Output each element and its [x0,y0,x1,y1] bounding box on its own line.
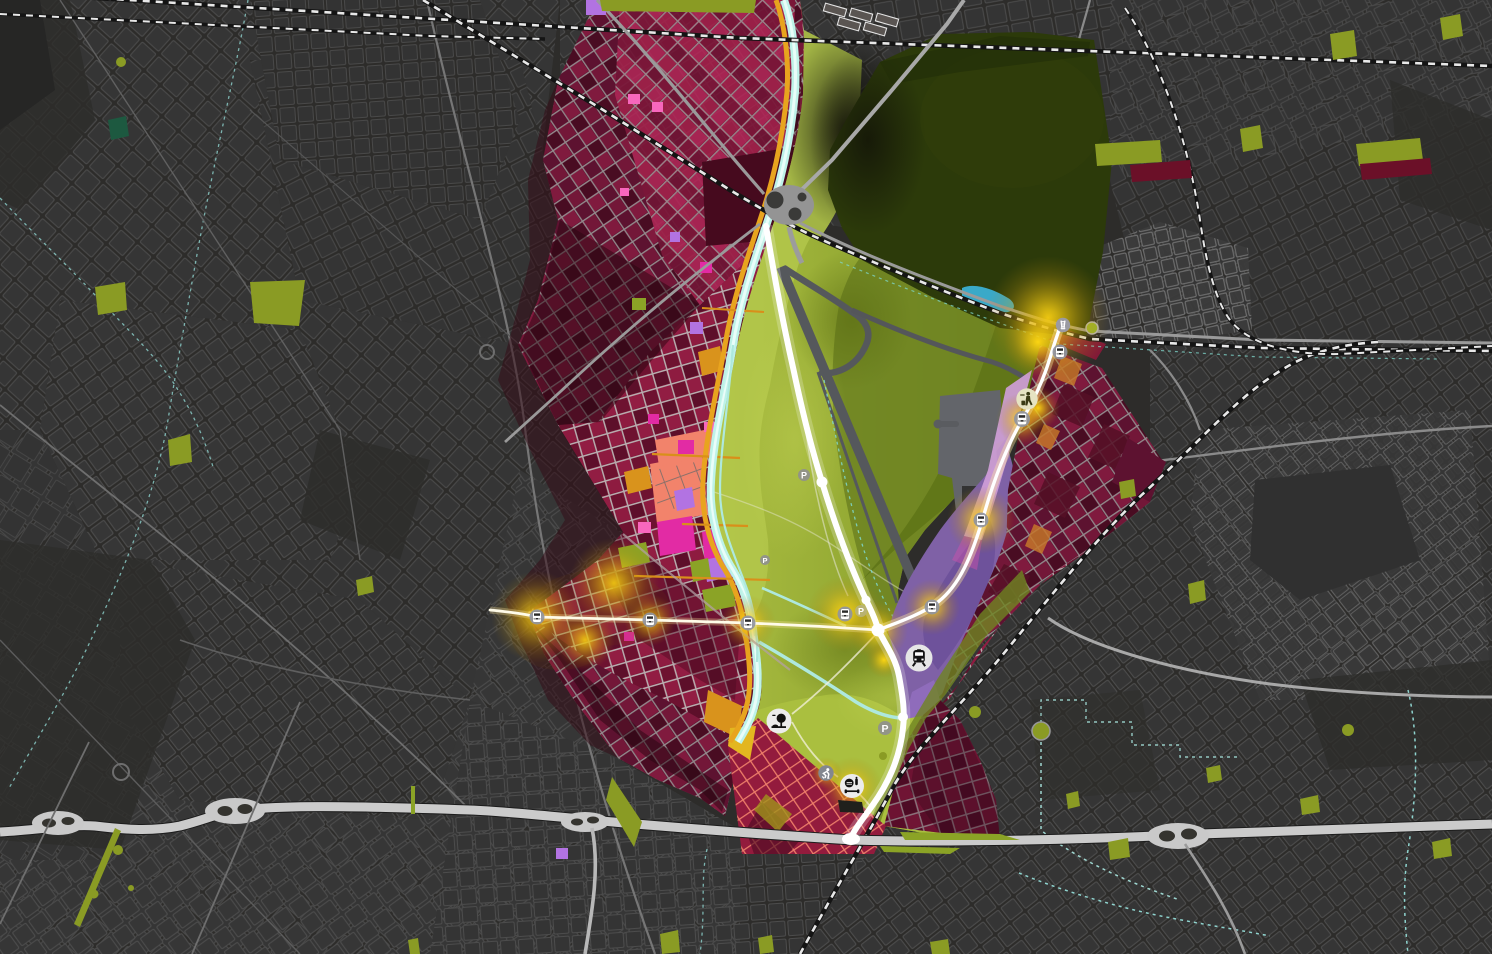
svg-text:P: P [881,723,888,735]
svg-text:P: P [762,556,767,565]
svg-text:P: P [858,606,864,616]
svg-text:P: P [801,470,807,480]
